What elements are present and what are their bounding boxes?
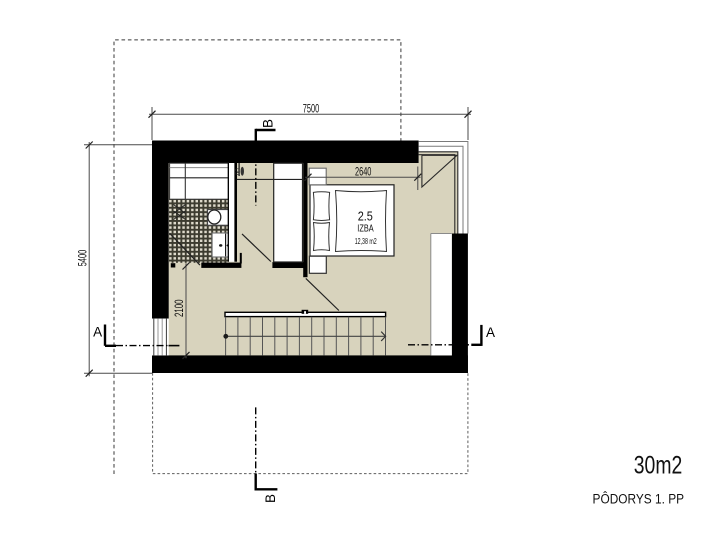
svg-text:B: B bbox=[261, 119, 276, 128]
svg-text:A: A bbox=[93, 325, 102, 340]
svg-text:IZBA: IZBA bbox=[357, 224, 374, 235]
svg-text:7500: 7500 bbox=[303, 103, 320, 115]
svg-text:B: B bbox=[263, 494, 278, 503]
svg-text:5400: 5400 bbox=[78, 250, 90, 267]
svg-text:12,38 m2: 12,38 m2 bbox=[355, 237, 377, 246]
svg-text:2640: 2640 bbox=[355, 166, 372, 178]
svg-text:2.5: 2.5 bbox=[358, 210, 373, 224]
svg-text:PÔDORYS 1. PP: PÔDORYS 1. PP bbox=[593, 492, 685, 507]
svg-text:30m2: 30m2 bbox=[634, 451, 683, 479]
svg-text:2100: 2100 bbox=[174, 299, 186, 317]
svg-text:60: 60 bbox=[235, 168, 241, 176]
svg-text:A: A bbox=[486, 325, 495, 340]
